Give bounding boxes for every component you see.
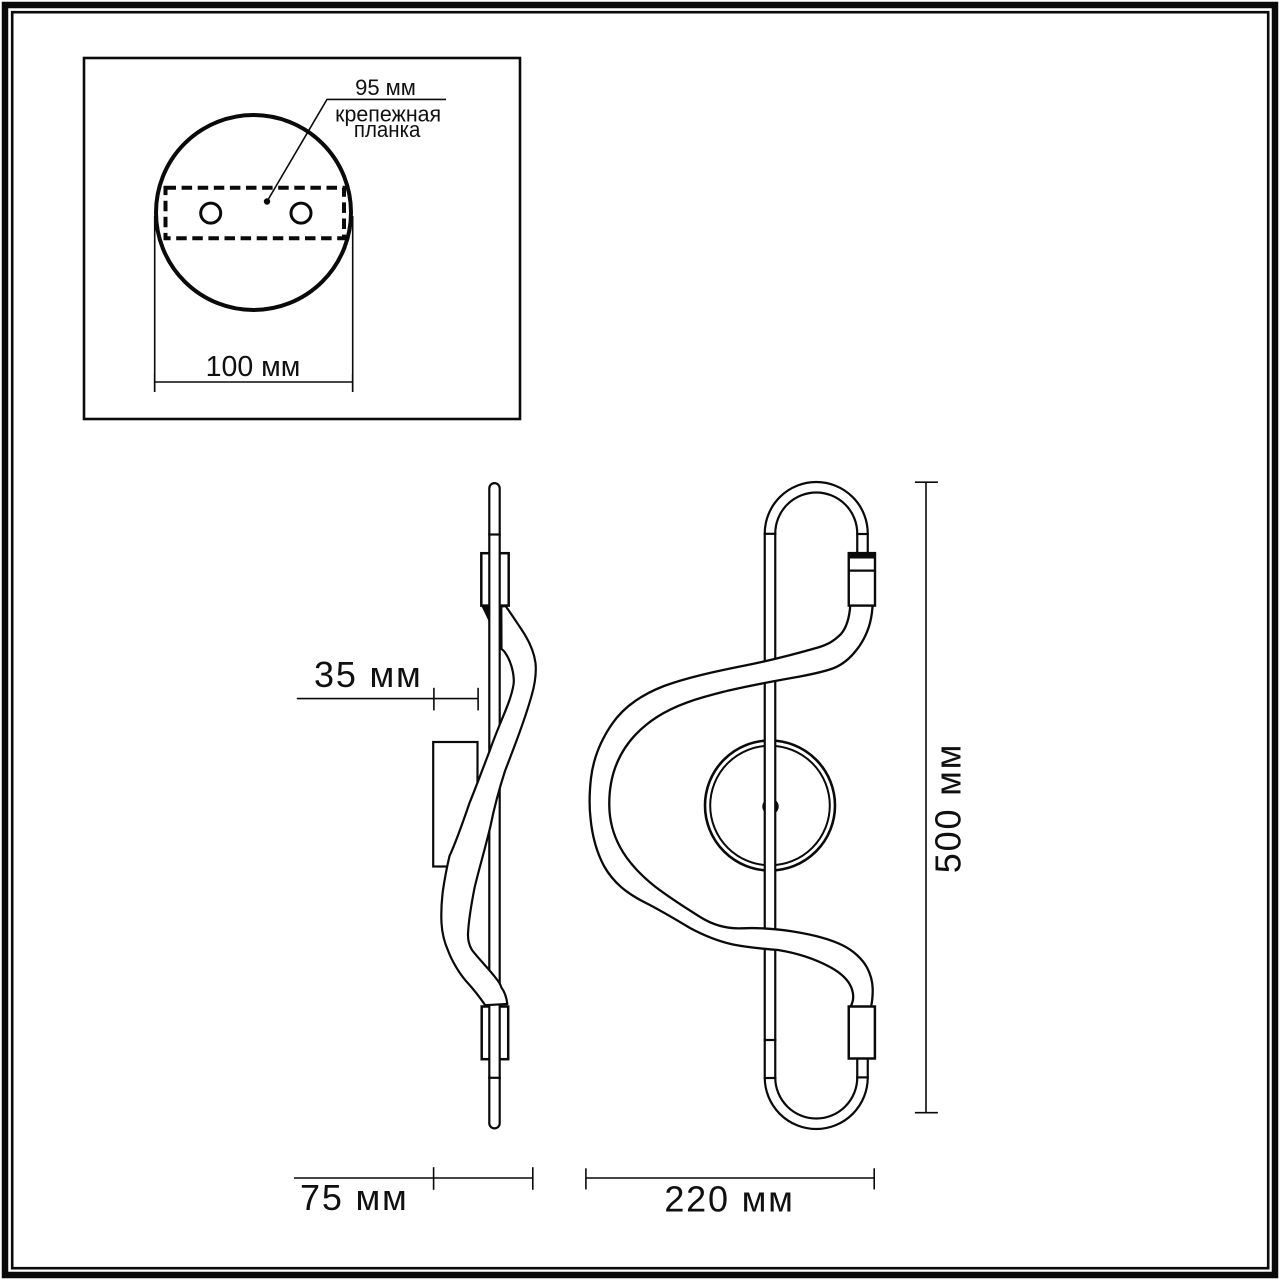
svg-text:100 мм: 100 мм	[206, 351, 301, 383]
svg-text:500 мм: 500 мм	[928, 743, 969, 873]
svg-text:35 мм: 35 мм	[314, 654, 423, 695]
svg-text:75 мм: 75 мм	[300, 1177, 409, 1218]
svg-text:220 мм: 220 мм	[664, 1178, 794, 1219]
svg-text:95 мм: 95 мм	[355, 75, 416, 100]
svg-text:планка: планка	[354, 117, 421, 142]
